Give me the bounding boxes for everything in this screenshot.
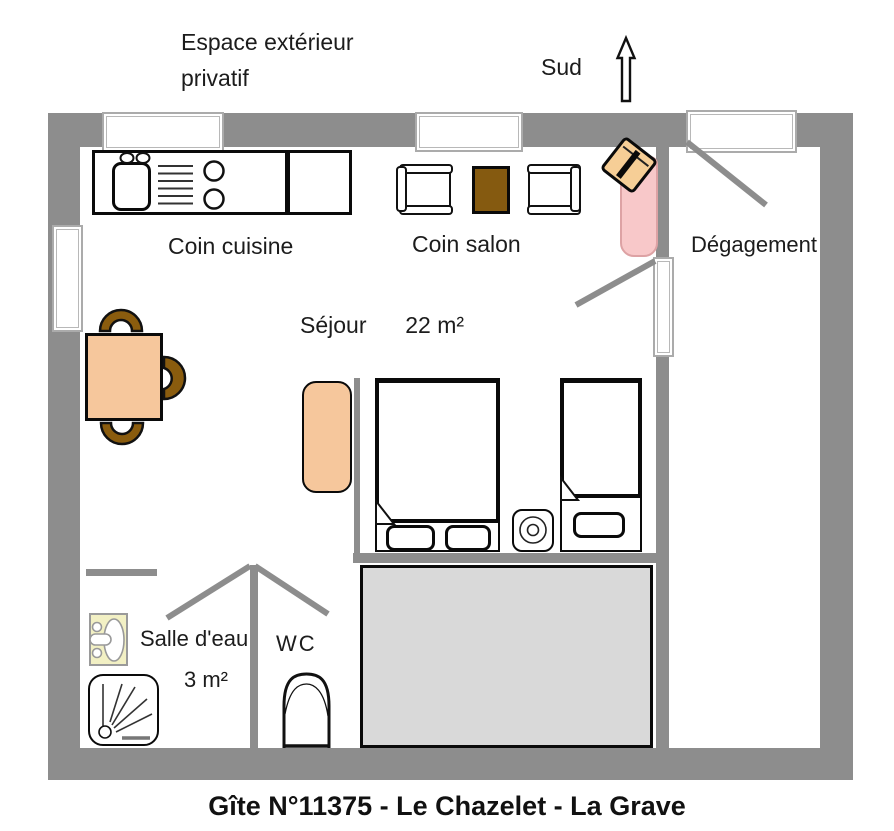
wall-right [820,113,853,780]
exterior-space-label-line1: Espace extérieur [181,24,354,60]
degagement-label: Dégagement [691,232,817,258]
dining-chair-top [100,310,142,331]
armchair-armrest-bottom [399,205,453,215]
plan-title: Gîte N°11375 - Le Chazelet - La Grave [0,791,894,822]
dining-chair-right [164,357,185,399]
stove-stripe [616,150,640,179]
shower-tray [88,674,159,746]
double-bed-pillow-left [386,525,435,551]
sofa [302,381,352,493]
entrance-door-frame [686,110,797,153]
window-kitchen [102,112,224,152]
door-swing-wc [255,566,328,614]
exterior-space-label: Espace extérieur privatif [181,24,354,96]
wall-bathroom-stub [86,569,157,576]
kitchen-counter-side [287,150,352,215]
sejour-area: 22 m² [405,312,464,338]
toilet-icon [284,674,329,748]
gray-floor-zone [360,565,653,748]
wall-wc-partition [250,565,258,748]
wc-label: WC [276,631,317,657]
wall-sofa-divider [354,378,360,558]
wall-left [48,113,80,780]
coffee-table [472,166,510,214]
kitchen-sink [112,162,151,211]
bathroom-label: Salle d'eau [140,626,248,652]
sejour-label: Séjour [300,312,366,338]
floor-plan: Espace extérieur privatif Sud [0,0,894,831]
door-swing-bathroom [167,566,250,618]
wall-under-beds [353,553,669,563]
dining-table [85,333,163,421]
bathroom-area: 3 m² [184,667,228,693]
window-left [52,225,83,332]
single-bed-pillow [573,512,625,538]
window-salon [415,112,523,152]
single-bed-duvet [560,378,642,498]
exterior-space-label-line2: privatif [181,60,354,96]
sejour-door-frame [653,257,674,357]
armchair-armrest-top [399,164,453,174]
armchair-backrest [570,166,581,212]
dining-chair-bottom [101,423,143,444]
compass-south-label: Sud [541,54,582,81]
salon-label: Coin salon [412,231,521,258]
door-swing-sejour [576,261,655,305]
armchair-backrest [396,166,407,212]
washbasin [89,613,128,666]
armchair-left [396,164,453,215]
kitchen-label: Coin cuisine [168,233,293,260]
north-arrow-icon [618,38,635,101]
double-bed-pillow-right [445,525,491,551]
wall-bottom [48,748,853,780]
bedside-table [512,509,554,552]
sejour-label-group: Séjour 22 m² [300,312,464,339]
armchair-right [524,164,581,215]
double-bed-duvet [375,378,500,523]
